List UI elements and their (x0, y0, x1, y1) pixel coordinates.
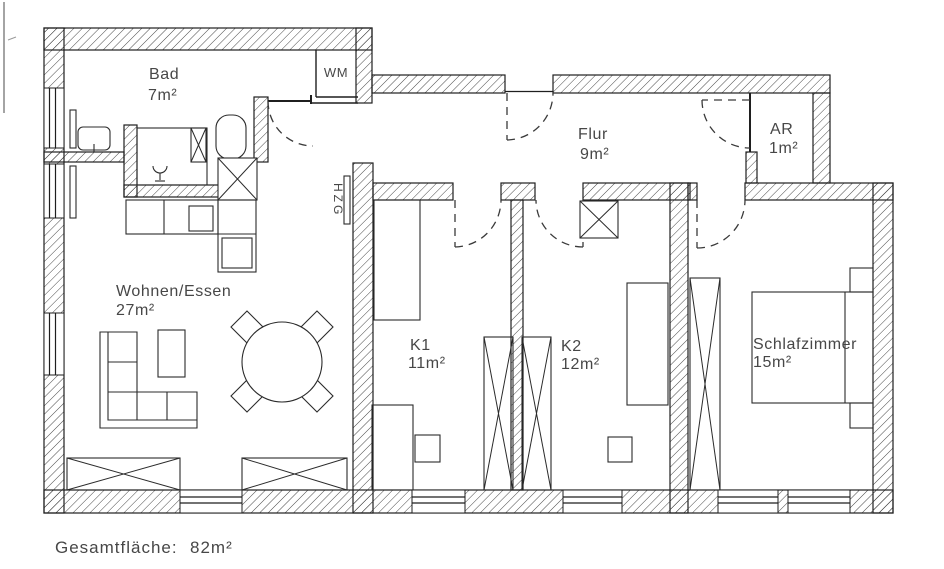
wall-outer-right (873, 183, 893, 513)
radiator-wohnen-1 (67, 458, 180, 490)
footer-total-area-value: 82m² (190, 538, 233, 557)
wall-bad-door-jamb (254, 97, 268, 162)
wall-flur-k1 (373, 183, 453, 200)
door-bad (268, 101, 313, 146)
door-k1 (455, 200, 501, 247)
kitchen-units (126, 200, 256, 272)
wall-bad-bottom (44, 152, 124, 162)
window-k1-bottom (412, 490, 465, 513)
room-label-wohnen-area: 27m² (116, 302, 155, 319)
dining-table (242, 322, 322, 402)
sofa (100, 332, 197, 428)
nightstand-2 (850, 403, 873, 428)
k2-wardrobe (522, 337, 551, 490)
wall-wohnen-k1 (353, 163, 373, 513)
k2-bed (627, 283, 668, 405)
room-label-flur-name: Flur (578, 126, 608, 143)
schlaf-wardrobe (690, 278, 720, 490)
door-schlafzimmer (697, 200, 745, 248)
wm-label: WM (324, 65, 348, 80)
toilet (216, 115, 246, 159)
footer: Gesamtfläche: 82m² (55, 538, 233, 557)
room-label-k1-area: 11m² (408, 355, 446, 372)
wall-ar-left-stub (746, 152, 757, 183)
window-wohnen-left-1 (44, 164, 64, 218)
scan-artifacts (4, 2, 16, 113)
schlafzimmer-furniture (690, 268, 873, 490)
room-label-schlaf-name: Schlafzimmer (753, 336, 857, 353)
room-label-k2-name: K2 (561, 338, 582, 355)
wall-outer-top-bad (44, 28, 372, 50)
wall-wm-block (356, 28, 372, 103)
room-label-ar-name: AR (770, 121, 793, 138)
side-table (158, 330, 185, 377)
k1-furniture (372, 200, 513, 490)
wall-schlaf-top (745, 183, 893, 200)
window-schlaf-bottom-2 (788, 490, 850, 513)
room-label-wohnen-name: Wohnen/Essen (116, 283, 231, 300)
room-label-ar-area: 1m² (769, 140, 798, 157)
room-label-bad-area: 7m² (148, 87, 177, 104)
door-ar (702, 100, 750, 148)
room-label-flur-area: 9m² (580, 146, 609, 163)
kitchen-counter-top (126, 200, 218, 234)
kitchen-counter-side (218, 200, 256, 272)
kitchen-stove (222, 238, 252, 268)
door-k2 (536, 200, 583, 247)
k1-wardrobe (484, 337, 513, 490)
room-label-k2-area: 12m² (561, 356, 600, 373)
window-k2-bottom (563, 490, 622, 513)
floor-plan-drawing: Bad 7m² WM Flur 9m² AR 1m² Wohnen/Essen … (0, 0, 944, 569)
room-label-bad-name: Bad (149, 66, 179, 83)
wall-k2-schlaf (670, 183, 688, 513)
room-labels: Bad 7m² WM Flur 9m² AR 1m² Wohnen/Essen … (116, 65, 857, 373)
window-bad-left (44, 88, 64, 148)
shaft-k2 (580, 201, 618, 238)
k2-stool (608, 437, 632, 462)
footer-total-area-label: Gesamtfläche: (55, 538, 178, 557)
window-wohnen-bottom (180, 490, 242, 513)
kitchen-sink-unit (189, 206, 213, 231)
wall-flur-top-right (553, 75, 830, 93)
k2-furniture (522, 201, 668, 490)
room-label-k1-name: K1 (410, 337, 431, 354)
radiator-bad-left (70, 110, 76, 148)
k1-dresser (372, 405, 413, 490)
hzg-label: HZG (331, 183, 345, 217)
wall-flur-top-left (372, 75, 505, 93)
radiator-wohnen-left (70, 166, 76, 218)
floor-plan-page: Bad 7m² WM Flur 9m² AR 1m² Wohnen/Essen … (0, 0, 944, 569)
wall-door-pillar (501, 183, 535, 200)
window-schlaf-bottom-1 (718, 490, 778, 513)
shaft-bad (218, 158, 257, 200)
living-furniture (67, 110, 350, 490)
shower-column (191, 128, 206, 162)
k1-stool (415, 435, 440, 462)
room-label-schlaf-area: 15m² (753, 354, 792, 371)
wall-ar-right (813, 93, 830, 183)
shower-tub (137, 128, 207, 185)
door-entrance (507, 93, 553, 140)
k1-bed (374, 200, 420, 320)
nightstand-1 (850, 268, 873, 292)
radiator-wohnen-2 (242, 458, 347, 490)
shower-drain (153, 166, 167, 181)
windows (44, 88, 850, 513)
window-wohnen-left-2 (44, 313, 64, 375)
